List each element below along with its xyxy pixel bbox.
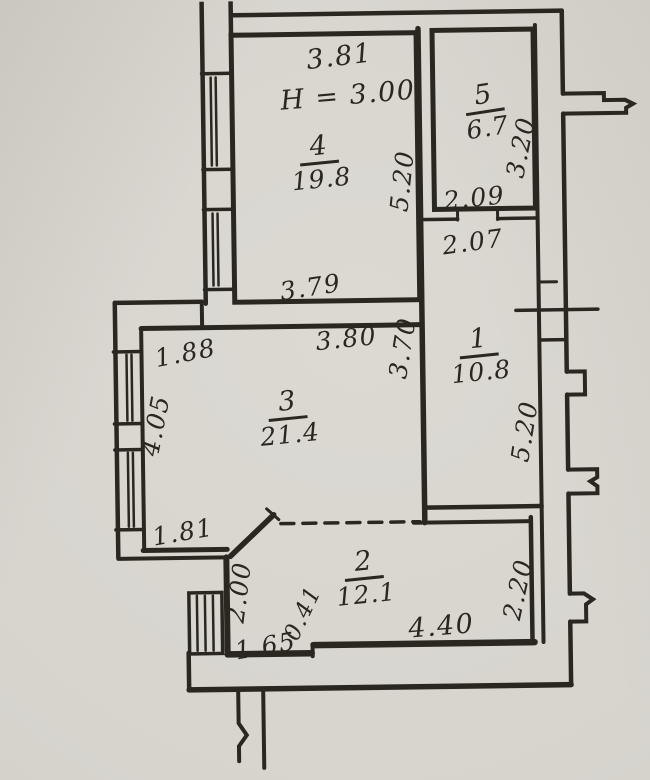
dim-room3-width-top: 3.80 <box>314 321 378 356</box>
entry-louver-window <box>189 592 223 653</box>
window-symbol <box>203 209 234 289</box>
dim-room2-width: 4.40 <box>407 608 475 644</box>
floor-plan: 3.81 H = 3.00 5.20 3.20 2.09 2.07 3.79 3… <box>0 0 650 780</box>
walls-drawing <box>0 0 650 780</box>
room-1-label: 1 10.8 <box>447 322 512 387</box>
room-5-label: 5 6.7 <box>459 78 510 143</box>
room-2-area: 12.1 <box>335 576 397 609</box>
room-3-label: 3 21.4 <box>256 385 321 450</box>
floor-plan-drawing: 3.81 H = 3.00 5.20 3.20 2.09 2.07 3.79 3… <box>0 0 650 780</box>
rooms-2-3-open-boundary <box>281 522 420 524</box>
room-4-label: 4 19.8 <box>287 130 352 195</box>
room-3-number: 3 <box>266 386 308 421</box>
room-5-area: 6.7 <box>464 109 510 143</box>
room-2-number: 2 <box>342 546 384 581</box>
room-4-area: 19.8 <box>290 161 352 194</box>
room-1-area: 10.8 <box>450 354 512 387</box>
wall-notch <box>570 593 593 621</box>
room-4-number: 4 <box>297 131 339 166</box>
room-2-label: 2 12.1 <box>332 545 397 610</box>
room-1-number: 1 <box>457 323 499 358</box>
cut-line-right <box>516 309 598 310</box>
cut-wall-stub-bottom <box>263 691 264 768</box>
wall-notch <box>568 469 597 493</box>
window-symbol <box>202 73 233 169</box>
dim-hall-width-top: 2.09 <box>442 180 506 215</box>
cut-wall-stub-top-right <box>563 93 633 114</box>
room-3-area: 21.4 <box>259 417 321 450</box>
door-leaf <box>230 509 280 557</box>
cut-wall-stub-bottom <box>238 691 247 761</box>
wall-notch <box>567 371 585 394</box>
